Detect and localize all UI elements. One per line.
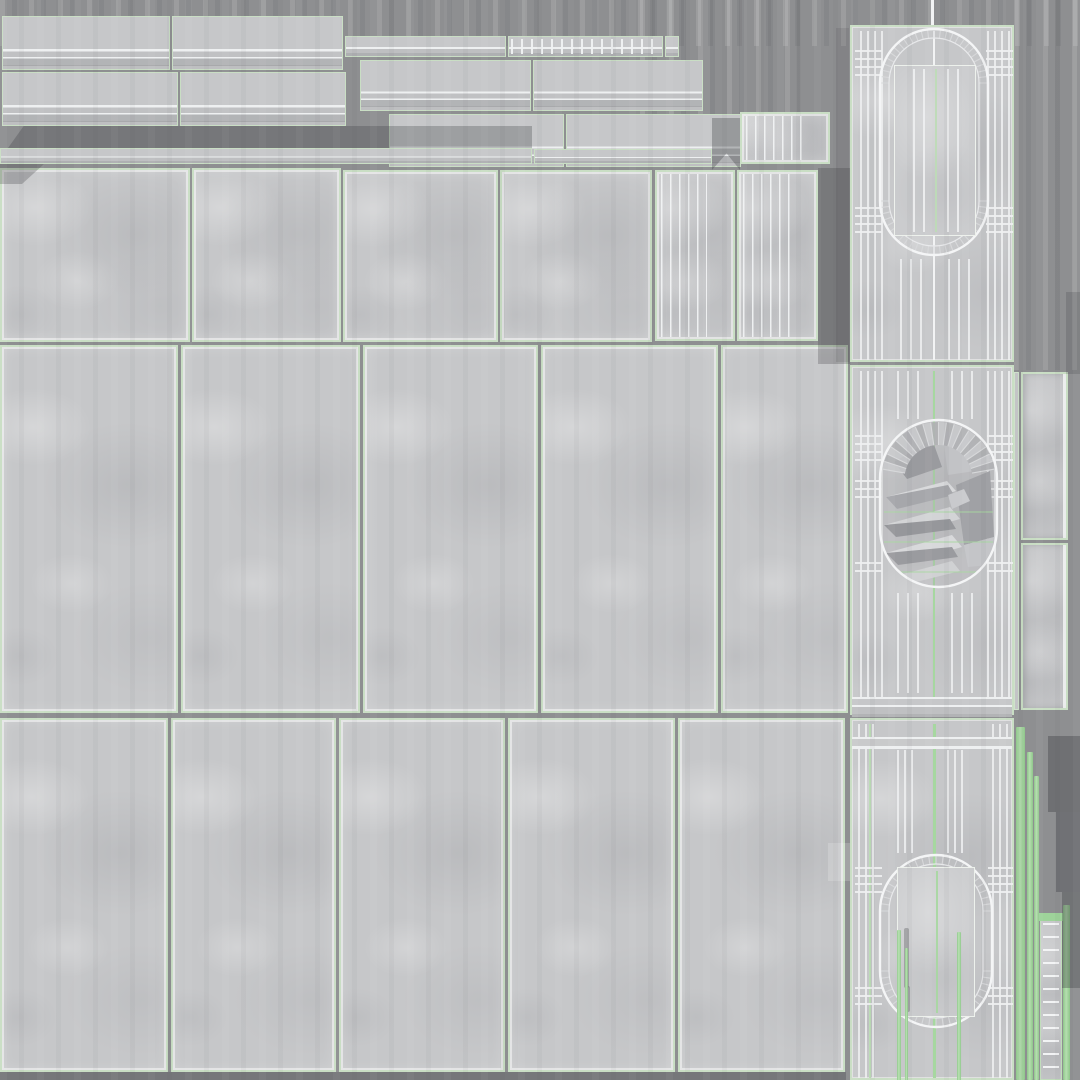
molding-strip-5	[180, 72, 346, 126]
cap-strip-3	[0, 148, 532, 164]
molding-strip-3	[533, 60, 703, 111]
niche-oval-graphic	[852, 367, 1016, 717]
molding-strip-0	[2, 16, 170, 70]
grid-tile-r2-1	[181, 345, 360, 713]
flute-lines	[661, 174, 707, 337]
upper-tile-1	[192, 168, 341, 342]
cast-shadow-7	[1056, 812, 1080, 892]
uv-seam-stripe-1	[1027, 752, 1033, 1080]
molding-strip-1	[172, 16, 343, 70]
cast-shadow-5	[0, 1072, 846, 1080]
upper-tile-0	[0, 168, 190, 342]
grid-tile-r3-1	[171, 718, 336, 1072]
niche-inner-rectangle	[894, 65, 976, 236]
fluted-panel-0	[740, 112, 830, 164]
panel-seam-stripe-2	[957, 932, 961, 1080]
side-strip-0	[1021, 372, 1068, 540]
grid-tile-r2-4	[721, 345, 848, 713]
inner-rect-line-4	[935, 69, 937, 232]
upper-tile-3	[500, 170, 652, 342]
cap-strip-1	[508, 36, 663, 57]
molding-strip-2	[360, 60, 531, 111]
uv-seam-stripe-2	[1034, 776, 1039, 1080]
panel-bottom-rail	[852, 697, 1012, 717]
arched-niche-panel-middle	[850, 365, 1014, 715]
inner-rect-line-1	[923, 69, 925, 232]
upper-tile-2	[343, 170, 498, 342]
side-strip-1	[1021, 543, 1068, 710]
uv-seam-stripe-3	[1063, 905, 1070, 1080]
texture-atlas-canvas	[0, 0, 1080, 1080]
light-patch-0	[828, 843, 850, 881]
cast-shadow-3	[818, 168, 850, 364]
grid-tile-r3-4	[678, 718, 845, 1072]
uv-seam-stripe-0	[1016, 727, 1025, 1080]
panel-seam-stripe-0	[897, 930, 901, 1080]
arched-niche-panel-top	[850, 25, 1014, 362]
ladder-strip	[1040, 920, 1062, 1080]
background-streaks-2	[1014, 0, 1080, 370]
cap-strip-4	[534, 149, 712, 164]
niche-inner-rectangle	[897, 867, 975, 1017]
inner-rect-line-0	[936, 871, 938, 1013]
grid-tile-r2-3	[541, 345, 718, 713]
grid-tile-r3-3	[508, 718, 675, 1072]
arched-niche-panel-bottom	[850, 718, 1014, 1080]
cast-shadow-4	[836, 28, 849, 362]
flute-lines	[746, 116, 806, 160]
inner-rect-line-3	[957, 69, 959, 232]
panel-seam-stripe-1	[905, 948, 908, 1080]
inner-rect-line-0	[913, 69, 915, 232]
grid-tile-r2-0	[0, 345, 178, 713]
inner-rect-line-2	[947, 69, 949, 232]
grid-tile-r3-0	[0, 718, 168, 1072]
panel-top-rail	[852, 737, 1012, 749]
flute-lines	[743, 174, 795, 337]
molding-strip-4	[2, 72, 178, 126]
cast-shadow-6	[1048, 736, 1080, 812]
cap-strip-0	[345, 36, 506, 57]
seam-white-line-0	[931, 0, 934, 26]
grid-tile-r3-2	[339, 718, 505, 1072]
fluted-panel-2	[737, 170, 818, 341]
cap-strip-2	[665, 36, 679, 57]
grid-tile-r2-2	[363, 345, 538, 713]
ladder-cap	[1039, 913, 1063, 921]
fluted-panel-1	[655, 170, 735, 341]
